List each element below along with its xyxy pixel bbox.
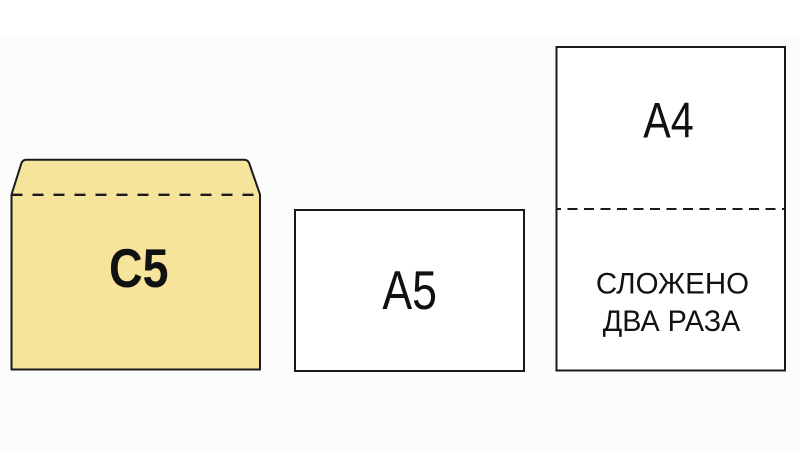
svg-text:C5: C5 — [109, 237, 169, 298]
svg-text:A4: A4 — [643, 92, 693, 149]
svg-text:A5: A5 — [382, 260, 437, 321]
svg-text:СЛОЖЕНО: СЛОЖЕНО — [596, 267, 749, 300]
svg-text:ДВА РАЗА: ДВА РАЗА — [603, 305, 741, 337]
